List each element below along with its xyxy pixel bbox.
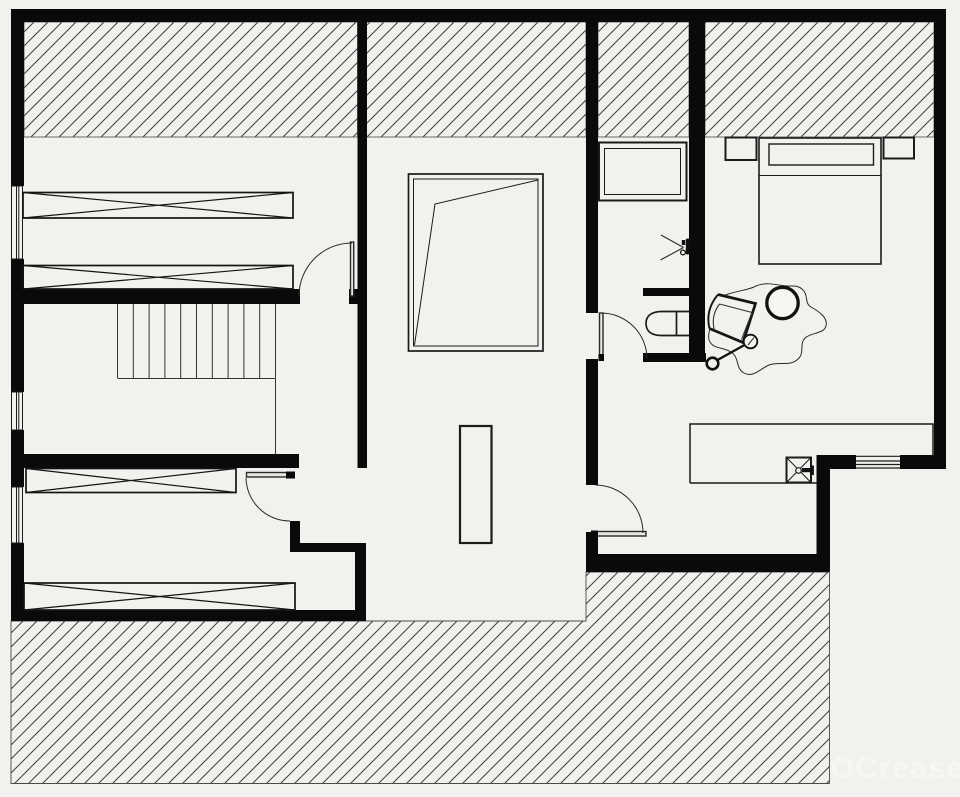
svg-text:OCrease: OCrease [830,750,960,785]
